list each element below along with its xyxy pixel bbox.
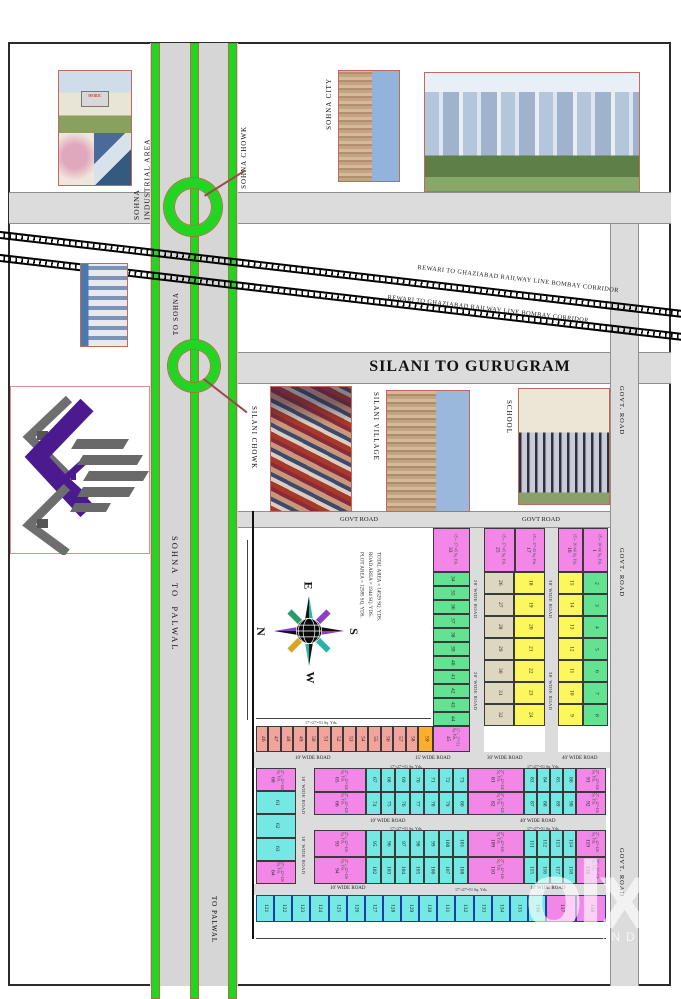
plot-cell: 83 — [524, 768, 537, 792]
developer-logo — [10, 386, 150, 554]
to-sohna-label: TO SOHNA — [172, 292, 180, 335]
plot-block-b-tan: 26272829303132 — [484, 572, 514, 726]
plot-cell: 72 — [439, 768, 454, 792]
plot-cell: 125 — [329, 895, 347, 922]
plot-cell: 6 — [583, 660, 608, 682]
plot-cell: 6027'×42'=126 Sq. Yds. — [256, 768, 296, 791]
plot-cell: 130 — [419, 895, 437, 922]
plot-cell: 11 — [558, 660, 583, 682]
plot-cell: 129 — [401, 895, 419, 922]
plot-cell: 122 — [274, 895, 292, 922]
plot-cell: 115 — [524, 857, 537, 884]
plot-cell: 61 — [256, 791, 296, 814]
plot-cell: 73 — [453, 768, 468, 792]
plot-cell: 4 — [583, 616, 608, 638]
plot-cell: 46 — [256, 726, 268, 752]
total-area: TOTAL AREA = 14529 SQ. YDS. — [373, 552, 382, 621]
plot-cell: 6527'×42'=126 Sq. Yds. — [314, 768, 366, 792]
govt-road-label: GOVT ROAD — [340, 516, 378, 523]
plot-band2-cyan-right: 111112113114115116117118 — [524, 830, 576, 884]
plot-cell: 44 — [433, 712, 470, 726]
plot-cell: 38 — [433, 628, 470, 642]
plot-cell: 62 — [256, 814, 296, 837]
plot-cell: 12027'×42'=126 Sq. Yds. — [576, 857, 606, 884]
top-road — [9, 192, 671, 224]
to-palwal-label: TO PALWAL — [210, 896, 218, 943]
plot-cell: 9227'×42'=126 Sq. Yds. — [576, 792, 606, 816]
wide-road-label: 20' WIDE ROAD — [473, 580, 478, 618]
area-summary: TOTAL AREA = 14529 SQ. YDS. ROAD AREA = … — [356, 552, 382, 621]
plot-left-column: 6027'×42'=126 Sq. Yds.6162636427'×42'=12… — [256, 768, 296, 884]
plot-band2-pink-mid: 10927'×42'=126 Sq. Yds.11027'×42'=126 Sq… — [468, 830, 524, 884]
plot-cell: 31 — [484, 682, 514, 704]
plot-cell: 86 — [563, 768, 576, 792]
plot-cell: 2515'×27'=45 Sq. Yds. — [484, 528, 515, 572]
plot-cell: 23 — [514, 682, 545, 704]
road-green-stripe — [228, 43, 237, 999]
plot-block-a-header: 1615'×36'=60 Sq. Yds.115'×36'=60 Sq. Yds… — [558, 528, 608, 572]
plot-cell: 15 — [558, 572, 583, 594]
plot-cell: 118 — [563, 857, 576, 884]
sohna-city-label: SOHNA CITY — [325, 78, 333, 130]
plot-cell: 89 — [550, 792, 563, 816]
dimension-line — [247, 540, 248, 720]
plot-cell: 69 — [395, 768, 410, 792]
plot-cell: 20 — [514, 616, 545, 638]
plot-cell: 133 — [474, 895, 492, 922]
plot-cell: 8227'×42'=126 Sq. Yds. — [468, 792, 524, 816]
dimension-line — [256, 938, 606, 939]
plot-cell: 39 — [433, 642, 470, 656]
plot-cell: 131 — [437, 895, 455, 922]
plot-band2-pink-left: 9327'×42'=126 Sq. Yds.9427'×42'=126 Sq. … — [314, 830, 366, 884]
plot-cell: 75 — [381, 792, 396, 816]
plot-cell: 107 — [439, 857, 454, 884]
plot-cell: 127 — [365, 895, 383, 922]
plot-cell: 101 — [453, 830, 468, 857]
plot-cell: 102 — [366, 857, 381, 884]
plot-cell: 80 — [453, 792, 468, 816]
plot-cell: 22 — [514, 660, 545, 682]
plot-cell: 63 — [256, 838, 296, 861]
flower-image — [59, 133, 94, 185]
site-plan-map: SILANI TO GURUGRAM GOVT ROAD GOVT ROAD G… — [0, 0, 681, 999]
plot-dims-annotation: 17'×27'=51 Sq. Yds. — [305, 720, 337, 725]
plot-block-b-yellow: 18192021222324 — [514, 572, 545, 726]
plot-cell: 126 — [347, 895, 365, 922]
plot-cell: 8 — [583, 704, 608, 726]
plot-cell: 136 — [528, 895, 546, 922]
layout-boundary — [252, 511, 254, 939]
plot-cell: 95 — [366, 830, 381, 857]
plot-block-c-foot: 4517'×27'=51 Sq. Yds. — [433, 726, 470, 752]
plot-cell: 90 — [563, 792, 576, 816]
plot-cell: 115'×36'=60 Sq. Yds. — [583, 528, 608, 572]
plot-cell: 2 — [583, 572, 608, 594]
compass-south: S — [346, 628, 361, 635]
plot-cell: 50 — [306, 726, 318, 752]
plot-cell: 98 — [410, 830, 425, 857]
plot-cell: 97 — [395, 830, 410, 857]
plot-cell: 99 — [424, 830, 439, 857]
plot-cell: 74 — [366, 792, 381, 816]
school-photo — [518, 388, 610, 505]
plot-cell: 56 — [381, 726, 393, 752]
plot-cell: 52 — [331, 726, 343, 752]
silani-chowk-photo — [270, 386, 352, 512]
plot-cell: 84 — [537, 768, 550, 792]
plot-cell: 14 — [558, 594, 583, 616]
plot-cell: 34 — [433, 572, 470, 586]
plot-cell: 137 — [546, 895, 576, 922]
plot-cell: 111 — [524, 830, 537, 857]
plot-cell: 7 — [583, 682, 608, 704]
plot-dims-annotation: 17'×27'=51 Sq. Yds. — [527, 826, 559, 831]
silani-to-gurugram-label: SILANI TO GURUGRAM — [369, 358, 570, 376]
plot-cell: 36 — [433, 600, 470, 614]
compass-icon — [270, 592, 348, 670]
institute-building-photo — [424, 72, 640, 192]
plot-cell: 128 — [383, 895, 401, 922]
sohna-city-photo — [338, 70, 400, 182]
plot-cell: 1615'×36'=60 Sq. Yds. — [558, 528, 583, 572]
plot-cell: 11027'×42'=126 Sq. Yds. — [468, 857, 524, 884]
wide-road-label: 30' WIDE ROAD — [548, 580, 553, 618]
plot-cell: 49 — [293, 726, 305, 752]
plot-cell: 27 — [484, 594, 514, 616]
plot-salmon-row: 46474849505152535455565758 — [256, 726, 418, 752]
plot-dims-annotation: 17'×27'=51 Sq. Yds. — [390, 826, 422, 831]
dimension-line — [256, 718, 431, 719]
compass-east: E — [301, 581, 316, 589]
plot-cell: 29 — [484, 638, 514, 660]
plot-cell: 68 — [381, 768, 396, 792]
plot-cell: 3 — [583, 594, 608, 616]
plot-cell: 42 — [433, 684, 470, 698]
sohna-chowk-roundabout — [164, 178, 222, 236]
plot-cell: 10 — [558, 682, 583, 704]
road-area: ROAD AREA = 1944 SQ. YDS. — [365, 552, 374, 621]
wide-road-label: 10' WIDE ROAD — [370, 819, 406, 824]
wide-road-label: 15' WIDE ROAD — [415, 756, 451, 761]
wide-road-label: 20' WIDE ROAD — [473, 672, 478, 710]
plot-cell: 48 — [281, 726, 293, 752]
plot-cell: 114 — [563, 830, 576, 857]
plot-block-a-yellow: 1514131211109 — [558, 572, 583, 726]
plot-cell: 108 — [453, 857, 468, 884]
plot-cell: 67 — [366, 768, 381, 792]
plot-band2-pink-right: 11927'×42'=126 Sq. Yds.12027'×42'=126 Sq… — [576, 830, 606, 884]
plot-cell: 8127'×42'=126 Sq. Yds. — [468, 768, 524, 792]
plot-cell: 76 — [395, 792, 410, 816]
road-strip — [470, 528, 484, 752]
plot-cell: 11927'×42'=126 Sq. Yds. — [576, 830, 606, 857]
plot-cell: 87 — [524, 792, 537, 816]
compass-north: N — [253, 627, 268, 636]
roadside-building-photo — [80, 263, 128, 347]
govt-road-label: GOVT. ROAD — [618, 386, 625, 435]
plot-cell: 117 — [550, 857, 563, 884]
plot-long-row: 1211221231241251261271281291301311321331… — [256, 895, 546, 922]
plot-cell: 41 — [433, 670, 470, 684]
plot-cell: 70 — [410, 768, 425, 792]
wide-road-label: 10' WIDE ROAD — [330, 886, 366, 891]
compass-west: W — [303, 672, 318, 684]
wide-road-label: 10' WIDE ROAD — [530, 886, 566, 891]
wide-road-label: 40' WIDE ROAD — [520, 819, 556, 824]
plot-cell: 124 — [310, 895, 328, 922]
plot-cell: 4517'×27'=51 Sq. Yds. — [433, 726, 470, 752]
plot-area: PLOT AREA = 12585 SQ. YDS. — [356, 552, 365, 621]
houses-logo-icon — [11, 387, 151, 555]
sohna-to-palwal-label: SOHNA TO PALWAL — [170, 536, 180, 651]
road-strip — [314, 815, 606, 830]
plot-cell: 55 — [368, 726, 380, 752]
plot-cell: 19 — [514, 594, 545, 616]
plot-cell: 28 — [484, 616, 514, 638]
plot-cell: 112 — [537, 830, 550, 857]
plot-cell: 121 — [256, 895, 274, 922]
plot-cell: 79 — [439, 792, 454, 816]
plot-cell: 135 — [510, 895, 528, 922]
plot-cell: 9427'×42'=126 Sq. Yds. — [314, 857, 366, 884]
wide-road-label: 30' WIDE ROAD — [548, 672, 553, 710]
plot-cell: 103 — [381, 857, 396, 884]
compass-rose: E S W N — [270, 592, 348, 670]
people-image — [94, 133, 131, 185]
plot-cell: 58 — [406, 726, 418, 752]
plot-cell: 47 — [268, 726, 280, 752]
school-label: SCHOOL — [505, 400, 513, 434]
silani-village-label: SILANI VILLAGE — [372, 392, 380, 461]
wide-road-label: 10' WIDE ROAD — [301, 776, 306, 814]
plot-cell: 78 — [424, 792, 439, 816]
plot-cell: 113 — [550, 830, 563, 857]
plot-cell: 123 — [292, 895, 310, 922]
plot-cell: 1715'×27'=45 Sq. Yds. — [515, 528, 546, 572]
plot-cell: 37 — [433, 614, 470, 628]
plot-band1-cyan-right: 8384858687888990 — [524, 768, 576, 815]
plot-cell: 32 — [484, 704, 514, 726]
plot-cell: 71 — [424, 768, 439, 792]
plot-cell: 24 — [514, 704, 545, 726]
plot-cell: 106 — [424, 857, 439, 884]
road-strip — [545, 528, 558, 752]
plot-cell: 134 — [492, 895, 510, 922]
plot-cell: 132 — [455, 895, 473, 922]
plot-cell: 138 — [576, 895, 606, 922]
plot-block-b-header: 2515'×27'=45 Sq. Yds.1715'×27'=45 Sq. Yd… — [484, 528, 545, 572]
plot-cell: 3315'×27'=45 Sq. Yds. — [433, 528, 470, 572]
plot-cell: 105 — [410, 857, 425, 884]
plot-cell: 6427'×42'=126 Sq. Yds. — [256, 861, 296, 884]
silani-chowk-label: SILANI CHOWK — [250, 406, 258, 469]
plot-block-c-header: 3315'×27'=45 Sq. Yds. — [433, 528, 470, 572]
plot-cell: 100 — [439, 830, 454, 857]
plot-cell: 57 — [393, 726, 405, 752]
sohna-chowk-label: SOHNA CHOWK — [240, 126, 248, 189]
plot-cell: 9327'×42'=126 Sq. Yds. — [314, 830, 366, 857]
wide-road-label: 10' WIDE ROAD — [295, 756, 331, 761]
plot-band1-pink-mid: 8127'×42'=126 Sq. Yds.8227'×42'=126 Sq. … — [468, 768, 524, 815]
plot-block-a-green: 2345678 — [583, 572, 608, 726]
silani-village-photo — [386, 390, 470, 512]
plot-cell: 88 — [537, 792, 550, 816]
sohna-industrial-area-label: SOHNA INDUSTRIAL AREA — [132, 70, 153, 220]
plot-long-row-pink: 137138 — [546, 895, 606, 922]
plot-cell: 10927'×42'=126 Sq. Yds. — [468, 830, 524, 857]
plot-cell: 54 — [356, 726, 368, 752]
plot-cell: 5 — [583, 638, 608, 660]
plot-cell: 77 — [410, 792, 425, 816]
govt-road-label: GOVT. ROAD — [618, 548, 625, 597]
plot-cell: 9 — [558, 704, 583, 726]
plot-cell: 35 — [433, 586, 470, 600]
plot-band1-pink-left: 6527'×42'=126 Sq. Yds.6627'×42'=126 Sq. … — [314, 768, 366, 815]
plot-cell: 53 — [343, 726, 355, 752]
plot-cell: 43 — [433, 698, 470, 712]
plot-cell: 51 — [318, 726, 330, 752]
govt-road-label: GOVT. ROAD — [618, 848, 625, 897]
plot-band1-pink-right: 9127'×42'=126 Sq. Yds.9227'×42'=126 Sq. … — [576, 768, 606, 815]
plot-cell: 85 — [550, 768, 563, 792]
plot-band2-cyan: 9596979899100101102103104105106107108 — [366, 830, 468, 884]
plot-dims-annotation: 17'×27'=51 Sq. Yds. — [527, 764, 559, 769]
wide-road-label: 40' WIDE ROAD — [562, 756, 598, 761]
plot-band1-cyan: 6768697071727374757677787980 — [366, 768, 468, 815]
plot-cell: 96 — [381, 830, 396, 857]
plot-cell: 6627'×42'=126 Sq. Yds. — [314, 792, 366, 816]
plot-cell: 9127'×42'=126 Sq. Yds. — [576, 768, 606, 792]
wide-road-label: 30' WIDE ROAD — [487, 756, 523, 761]
govt-road-label: GOVT ROAD — [522, 516, 560, 523]
plot-cell: 116 — [537, 857, 550, 884]
plot-block-c: 3435363738394041424344 — [433, 572, 470, 726]
plot-dims-annotation: 17'×27'=51 Sq. Yds. — [390, 764, 422, 769]
plot-orange-cell: 59 — [418, 726, 433, 752]
hsiidc-sign: HSIIDC — [81, 91, 109, 107]
plot-cell: 40 — [433, 656, 470, 670]
sohna-industrial-photo: HSIIDC — [58, 70, 132, 186]
plot-cell: 18 — [514, 572, 545, 594]
plot-cell: 13 — [558, 616, 583, 638]
plot-cell: 104 — [395, 857, 410, 884]
wide-road-label: 10' WIDE ROAD — [301, 836, 306, 874]
plot-cell: 12 — [558, 638, 583, 660]
plot-cell: 59 — [418, 726, 433, 752]
plot-cell: 30 — [484, 660, 514, 682]
plot-dims-annotation: 17'×27'=51 Sq. Yds. — [455, 887, 487, 892]
plot-cell: 21 — [514, 638, 545, 660]
plot-cell: 26 — [484, 572, 514, 594]
